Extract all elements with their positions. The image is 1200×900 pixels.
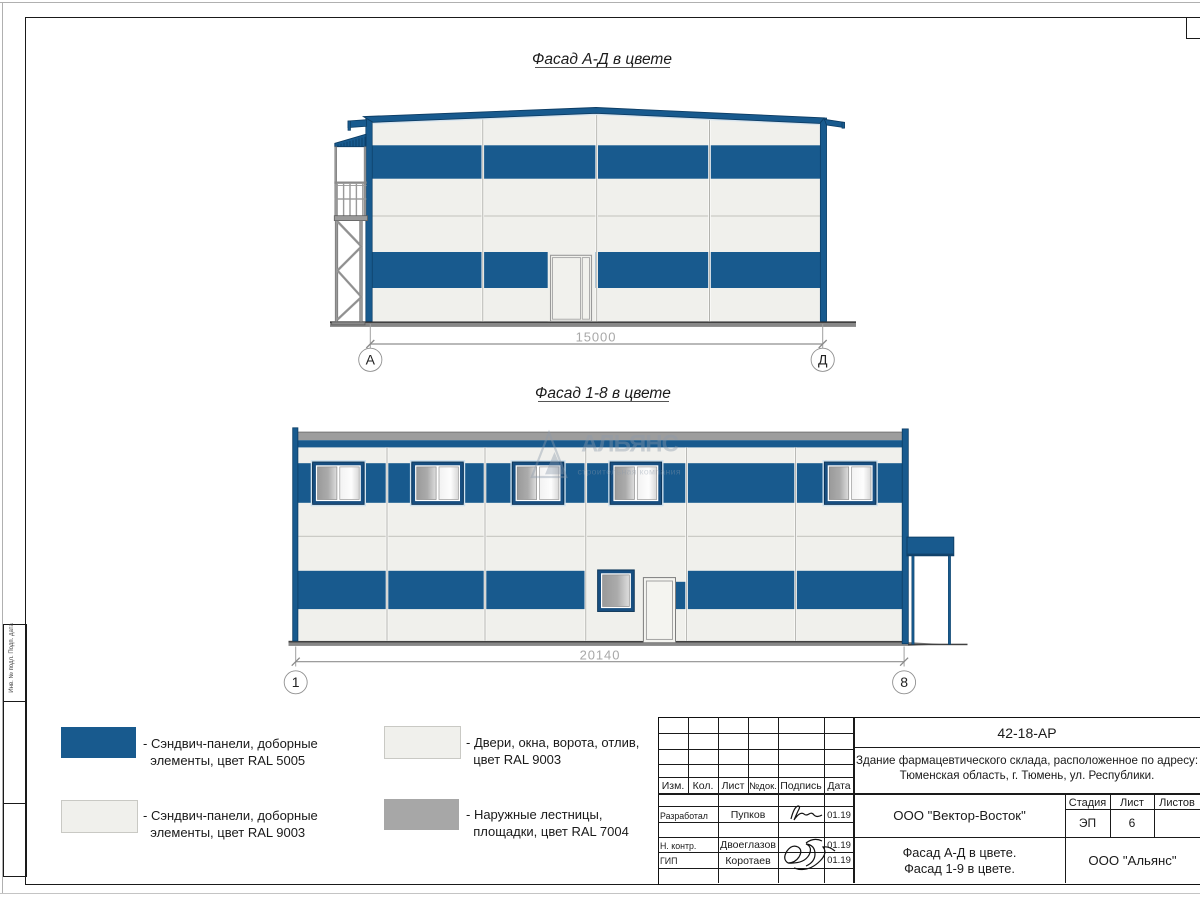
svg-text:А: А [366,352,376,368]
svg-text:8: 8 [900,674,908,690]
svg-text:20140: 20140 [580,648,621,663]
svg-text:строительная компания: строительная компания [578,466,681,476]
svg-text:Д: Д [818,352,828,368]
svg-text:15000: 15000 [576,330,617,345]
svg-text:АЛЬЯНС: АЛЬЯНС [581,431,679,458]
svg-text:1: 1 [292,674,300,690]
